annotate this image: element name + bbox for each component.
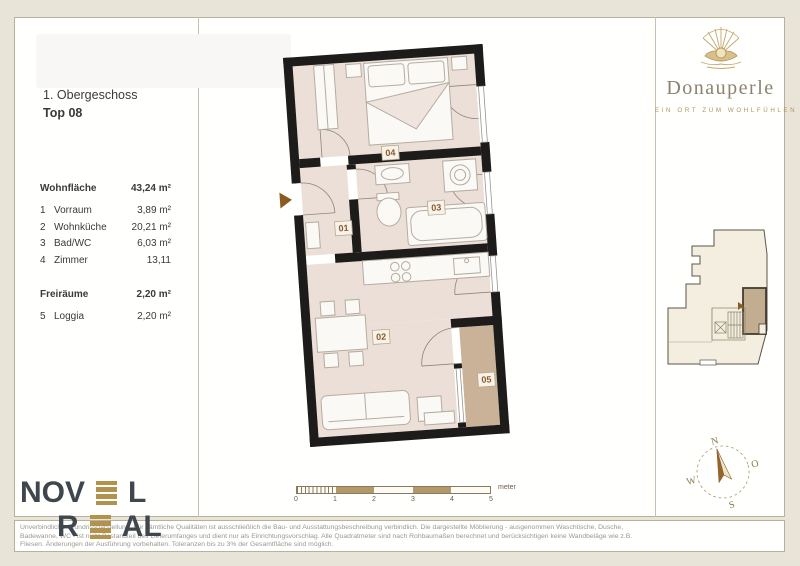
svg-text:04: 04 (385, 147, 396, 158)
living-area-value: 43,24 m² (131, 184, 171, 194)
pillow (408, 61, 445, 84)
area-table: Wohnfläche 43,24 m² 1 Vorraum 3,89 m² 2 … (40, 184, 171, 328)
project-brand: Donauperle EIN ORT ZUM WOHLFÜHLEN (655, 24, 786, 114)
scale-segment (451, 487, 490, 493)
room-area: 3,89 m² (137, 206, 171, 216)
logo-letters: L (128, 478, 146, 508)
table-row: 4 Zimmer 13,11 (40, 256, 171, 266)
column-divider-left (198, 17, 199, 517)
scale-tick: 5 (481, 496, 501, 503)
scale-segment (336, 487, 375, 493)
unit-label: Top 08 (43, 106, 138, 122)
agency-logo: NOV L R AL (20, 478, 162, 542)
floor-label: 1. Obergeschoss (43, 88, 138, 104)
row-number: 1 (40, 206, 54, 216)
chair (324, 353, 339, 368)
room-label-living: 02 (372, 329, 390, 344)
title-block: 1. Obergeschoss Top 08 (43, 88, 138, 121)
svg-text:02: 02 (376, 331, 387, 342)
compass-east: O (750, 458, 760, 470)
living-area-label: Wohnfläche (40, 184, 96, 194)
brand-tagline: EIN ORT ZUM WOHLFÜHLEN (655, 107, 786, 114)
row-number: 4 (40, 256, 54, 266)
entrance-arrow-icon (279, 192, 292, 209)
key-plan (660, 212, 780, 372)
lowboard (424, 411, 455, 425)
scale-segment (413, 487, 452, 493)
nightstand (451, 56, 467, 70)
table-row: 5 Loggia 2,20 m² (40, 312, 171, 322)
room-name: Vorraum (54, 206, 92, 216)
room-label-hall: 01 (335, 221, 353, 236)
scale-tick: 2 (364, 496, 384, 503)
room-label-loggia: 05 (477, 372, 495, 387)
brand-name: Donauperle (655, 77, 786, 100)
scale-unit-label: meter (498, 484, 516, 491)
room-name: Zimmer (54, 256, 88, 266)
logo-e-bars-icon (96, 481, 117, 506)
brochure-page: 1. Obergeschoss Top 08 Wohnfläche 43,24 … (0, 0, 800, 566)
pearl-shell-icon (697, 24, 745, 70)
nightstand (346, 64, 362, 78)
scale-tick: 3 (403, 496, 423, 503)
chair (320, 301, 335, 316)
keyplan-window (700, 360, 716, 365)
row-number: 5 (40, 312, 54, 322)
agency-logo-line2: R AL (57, 512, 162, 542)
row-number: 2 (40, 223, 54, 233)
open-areas-block: Freiräume 2,20 m² 5 Loggia 2,20 m² (40, 290, 171, 322)
logo-letters: R (57, 512, 79, 542)
scale-segment (297, 487, 336, 493)
scale-tick: 0 (286, 496, 306, 503)
compass-west: W (685, 475, 698, 488)
scale-segment (374, 487, 413, 493)
room-area: 6,03 m² (137, 239, 171, 249)
logo-letters: NOV (20, 478, 85, 508)
logo-letters: AL (122, 512, 162, 542)
open-area-label: Freiräume (40, 290, 88, 300)
open-area-value: 2,20 m² (137, 290, 171, 300)
room-area: 13,11 (147, 256, 171, 266)
dining-table (315, 315, 367, 352)
compass-south: S (728, 499, 736, 511)
table-row: 2 Wohnküche 20,21 m² (40, 223, 171, 233)
svg-text:01: 01 (338, 223, 349, 234)
room-name: Loggia (54, 312, 84, 322)
room-label-bath: 03 (427, 200, 445, 215)
chair (349, 351, 364, 366)
compass-north: N (710, 435, 720, 447)
table-row: 3 Bad/WC 6,03 m² (40, 239, 171, 249)
open-area-header: Freiräume 2,20 m² (40, 290, 171, 300)
hall-cabinet (306, 222, 321, 249)
pillow (368, 64, 405, 87)
scale-tick: 4 (442, 496, 462, 503)
living-area-header: Wohnfläche 43,24 m² (40, 184, 171, 194)
washing-machine (443, 159, 478, 192)
room-area: 2,20 m² (137, 312, 171, 322)
room-name: Bad/WC (54, 239, 91, 249)
compass-rose: N O S W (680, 428, 766, 514)
agency-logo-line1: NOV L (20, 478, 162, 508)
row-number: 3 (40, 239, 54, 249)
room-area: 20,21 m² (132, 223, 171, 233)
scale-tick: 1 (325, 496, 345, 503)
table-row: 1 Vorraum 3,89 m² (40, 206, 171, 216)
svg-text:05: 05 (481, 374, 492, 385)
chair (345, 299, 360, 314)
logo-e-bars-icon (90, 515, 111, 540)
floor-plan: 01 02 03 04 05 (230, 20, 550, 490)
room-name: Wohnküche (54, 223, 107, 233)
room-label-bedroom: 04 (381, 145, 399, 160)
washbasin (375, 163, 410, 184)
svg-text:03: 03 (431, 202, 442, 213)
scale-bar (296, 486, 491, 494)
pearl-icon (716, 48, 726, 58)
